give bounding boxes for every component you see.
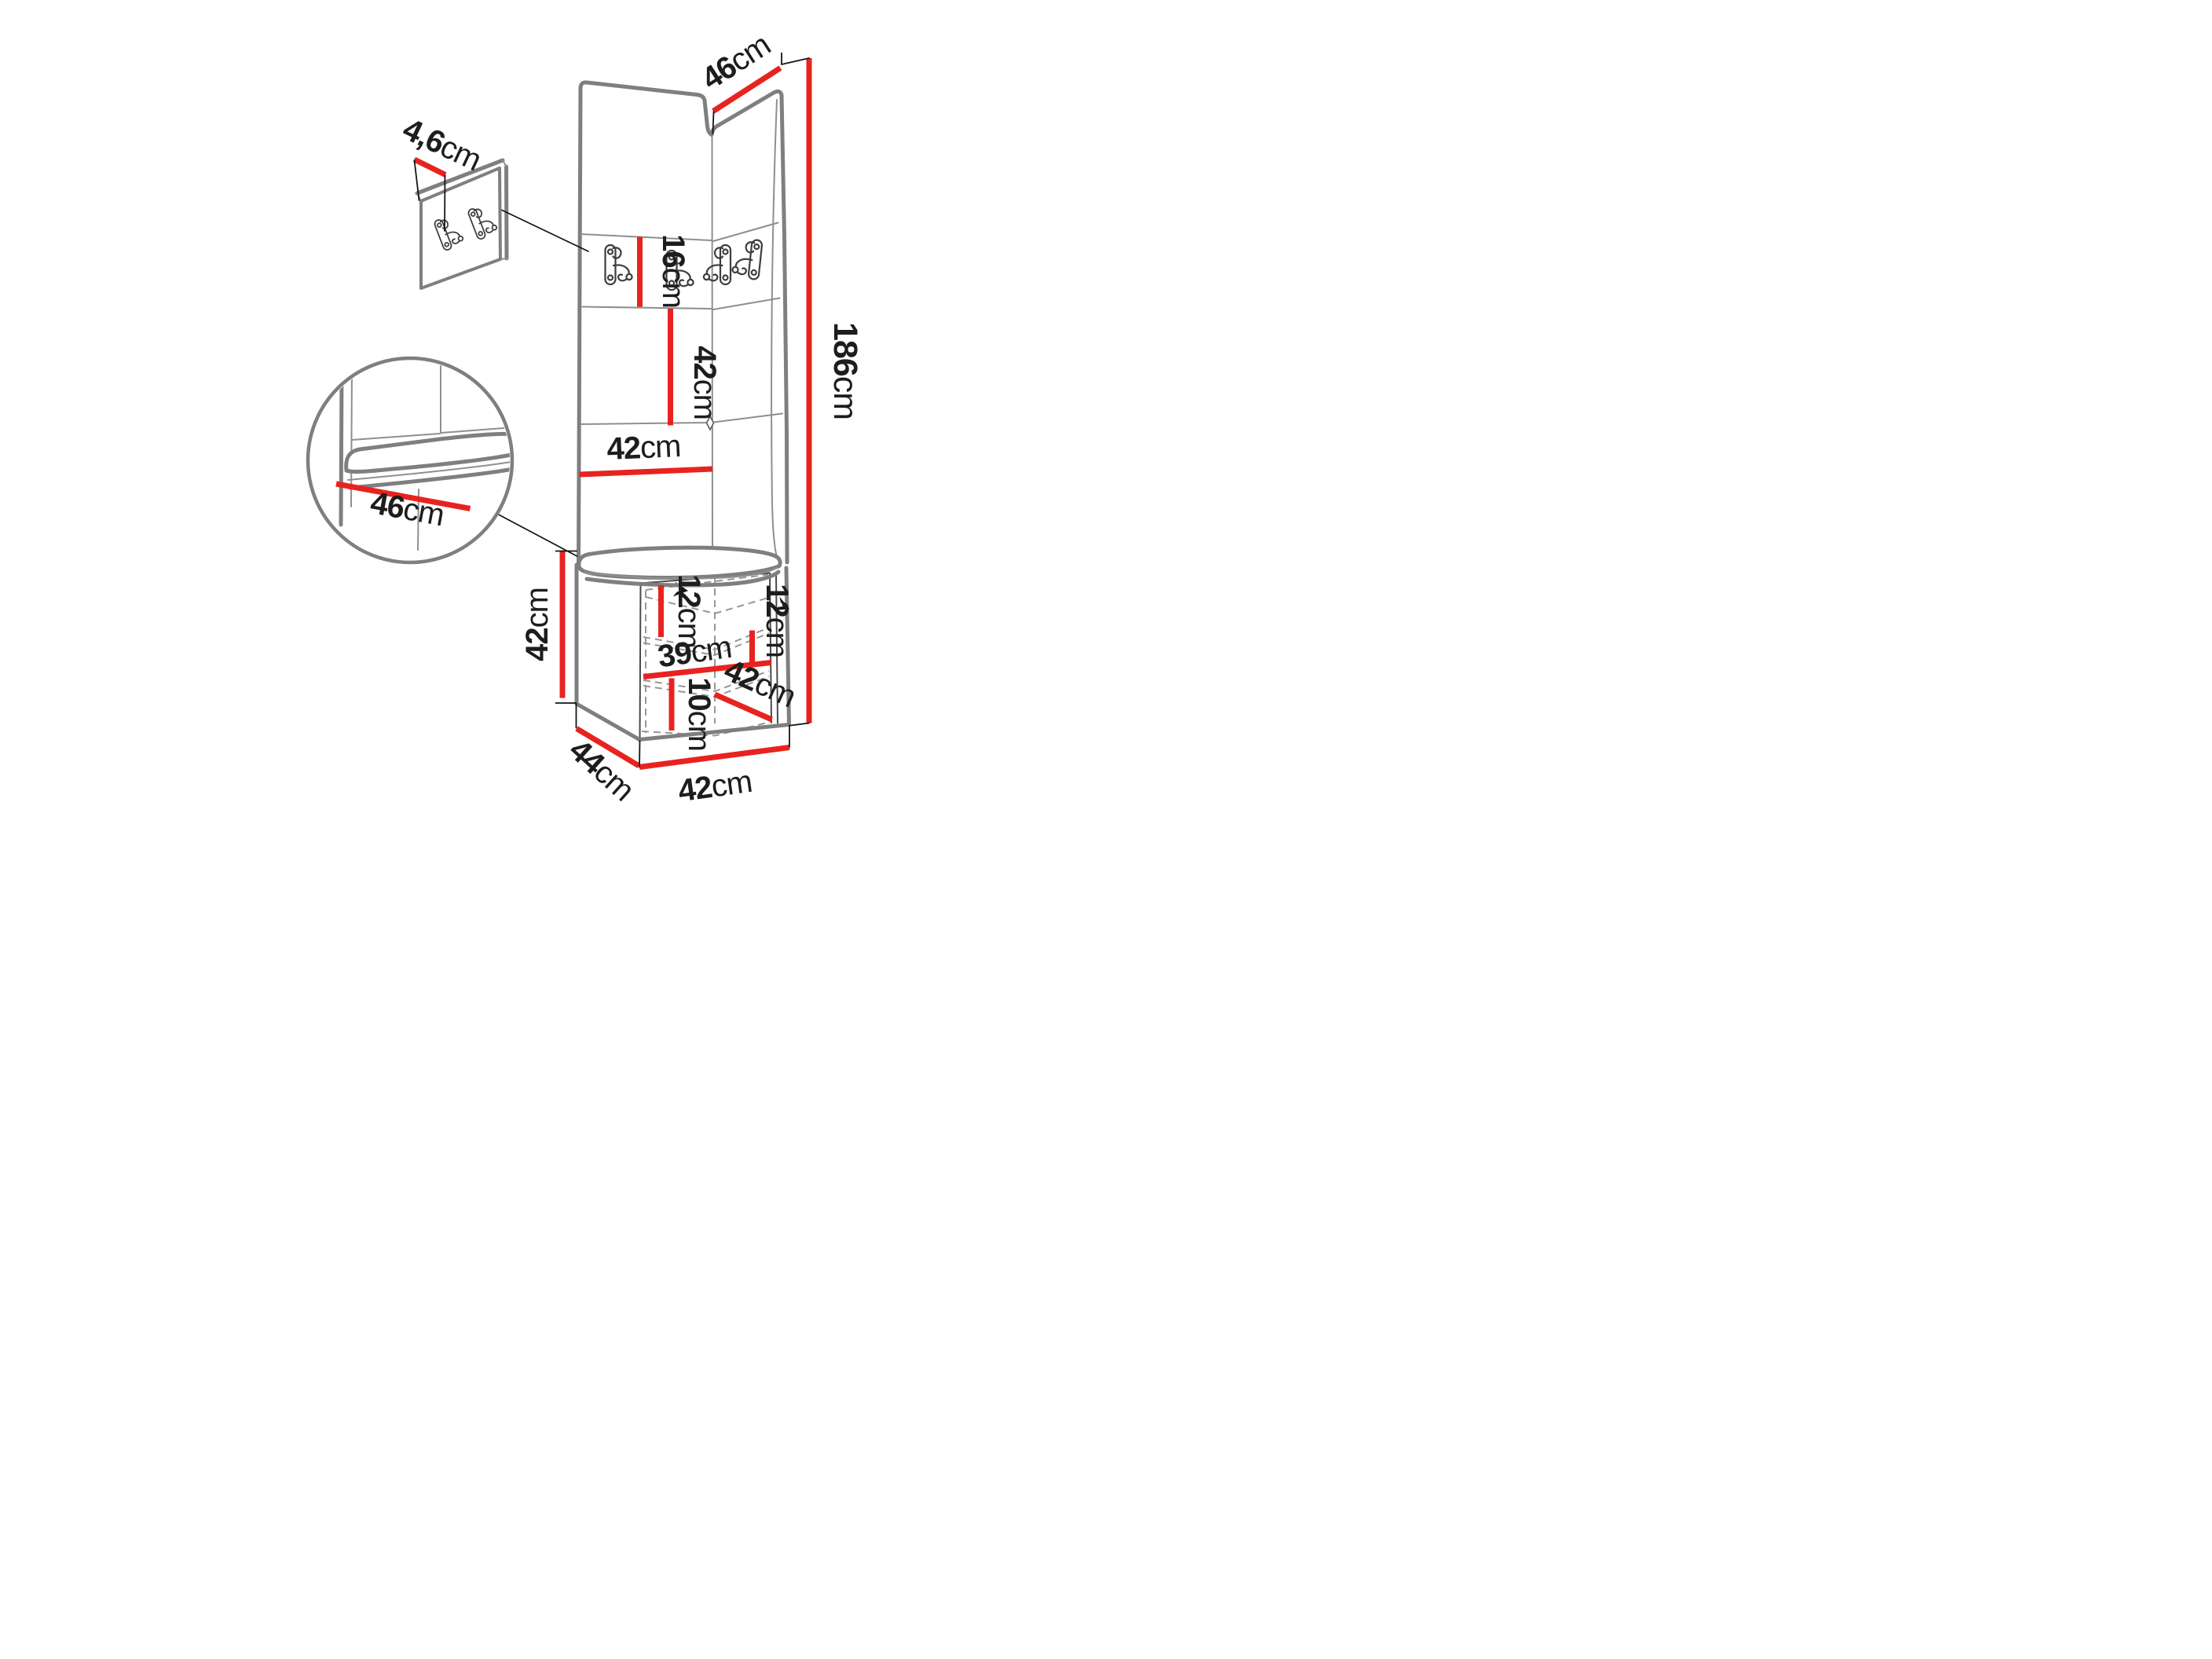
hook-strip-height-label: 16cm	[656, 234, 690, 308]
mid-panel-height-label: 42cm	[687, 346, 722, 419]
total-height-label: 186cm	[826, 322, 864, 419]
bench-height-label: 42cm	[520, 588, 555, 661]
corner-panel-unit	[578, 82, 787, 567]
seat-corner-detail-circle: 46cm	[308, 357, 577, 562]
panel-thickness-label: 4,6cm	[397, 112, 486, 178]
panel-width-label: 42cm	[606, 429, 682, 467]
hook-panel-detail	[417, 160, 588, 288]
right-shelf-height-label: 12cm	[760, 584, 794, 657]
panel-fold-seam	[712, 137, 713, 549]
top-panel-width-label: 46cm	[696, 27, 777, 97]
hallway-furniture-dimension-diagram: 46cm 46cm 4,6cm 16cm 42cm	[0, 0, 1106, 829]
detail-leader-line	[500, 515, 577, 557]
bottom-shelf-height-label: 10cm	[682, 677, 716, 751]
base-width-label: 42cm	[676, 764, 754, 809]
detail-leader-line	[502, 211, 588, 252]
